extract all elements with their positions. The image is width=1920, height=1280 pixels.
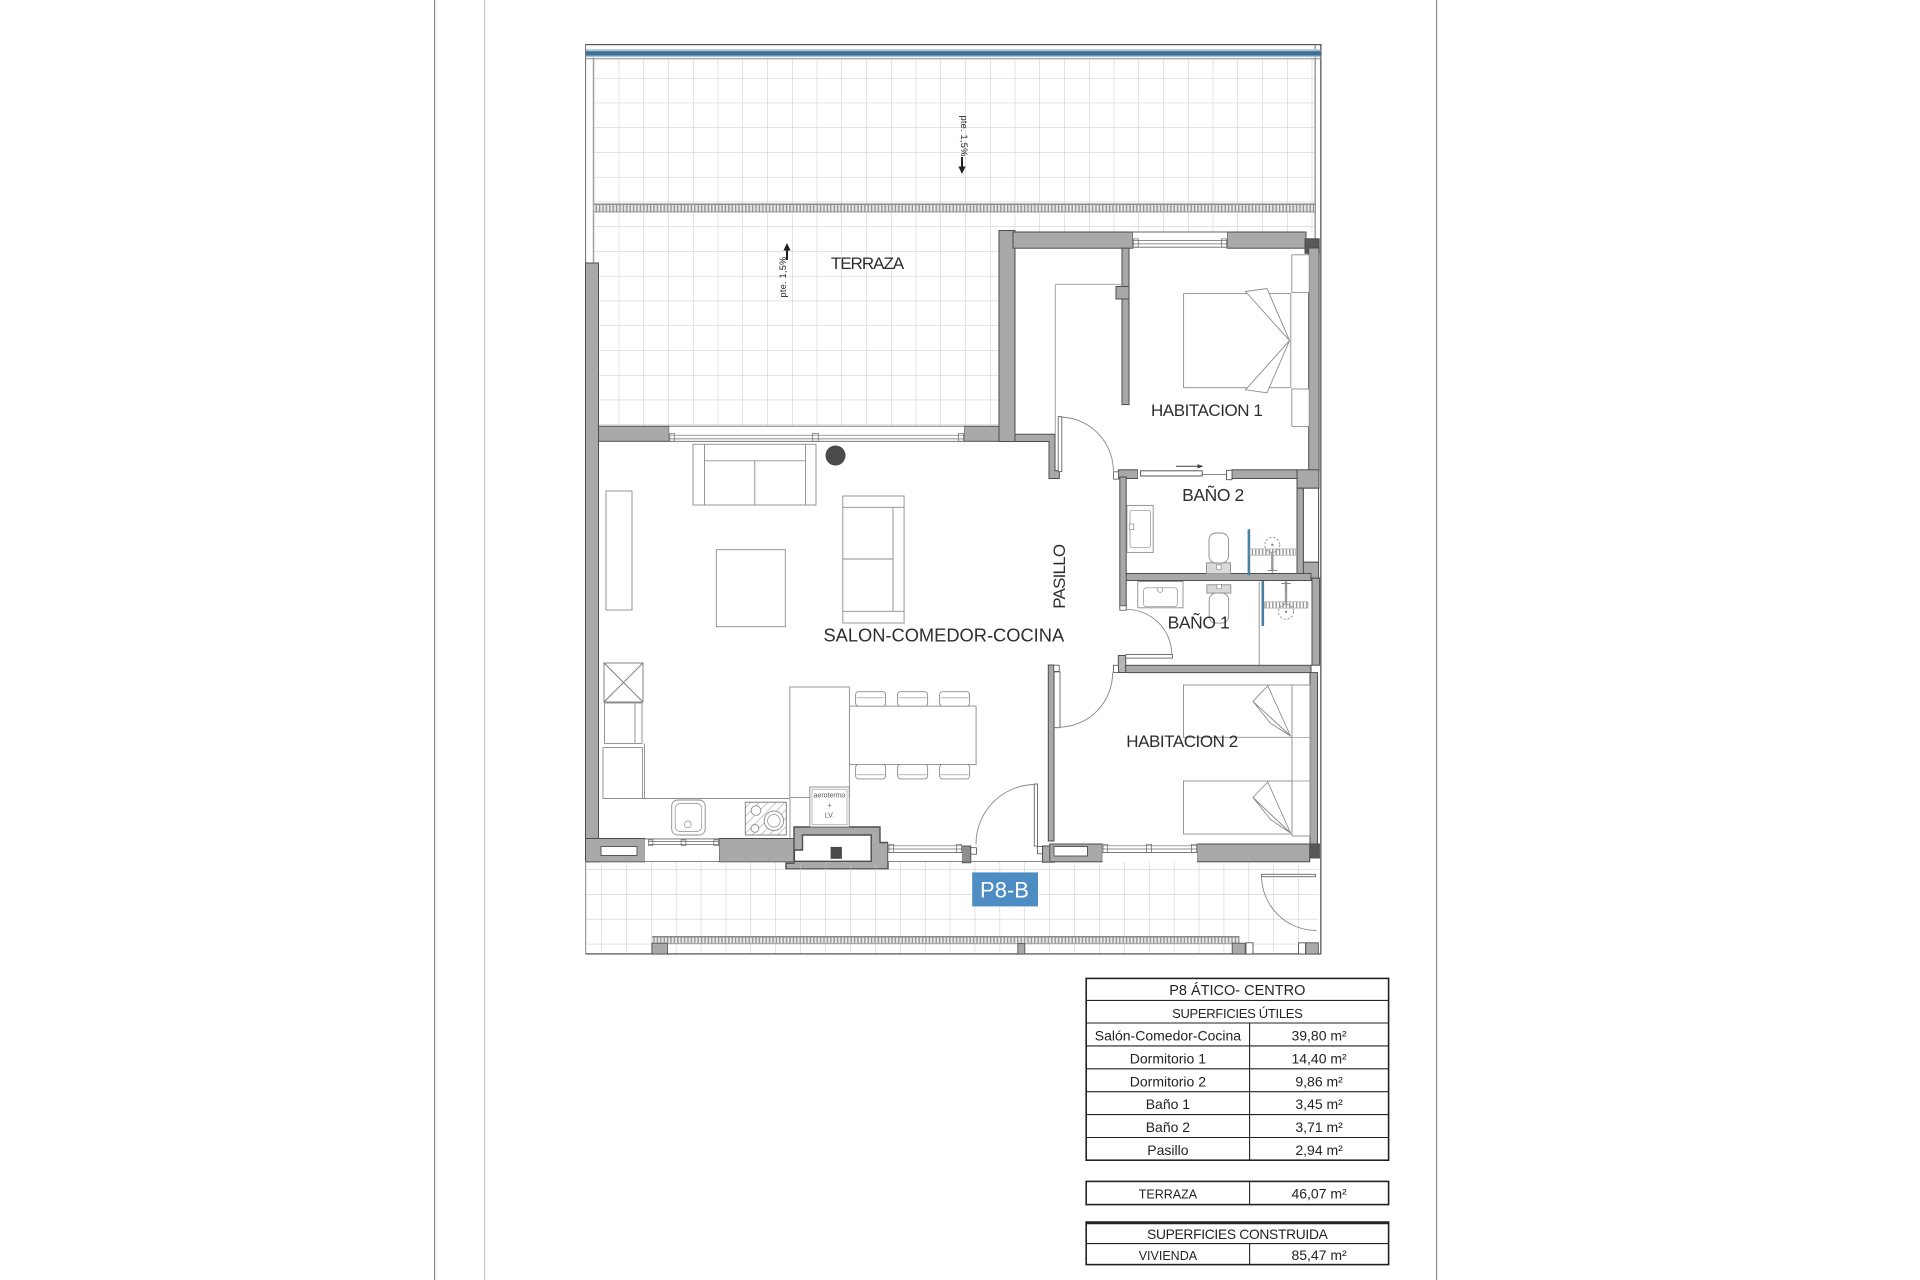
- svg-text:Dormitorio 2: Dormitorio 2: [1130, 1073, 1206, 1089]
- svg-text:SALON-COMEDOR-COCINA: SALON-COMEDOR-COCINA: [823, 625, 1065, 646]
- svg-text:pte. 1,5%: pte. 1,5%: [959, 115, 969, 156]
- svg-text:BAÑO 1: BAÑO 1: [1168, 612, 1230, 633]
- svg-text:85,47 m²: 85,47 m²: [1291, 1247, 1347, 1263]
- svg-text:9,86 m²: 9,86 m²: [1295, 1073, 1343, 1089]
- svg-text:Dormitorio 1: Dormitorio 1: [1130, 1050, 1206, 1066]
- svg-text:aerotermo: aerotermo: [814, 793, 846, 800]
- svg-text:Baño 2: Baño 2: [1146, 1119, 1191, 1135]
- svg-text:2,94 m²: 2,94 m²: [1295, 1142, 1343, 1158]
- svg-text:+: +: [827, 803, 831, 810]
- svg-text:SUPERFICIES CONSTRUIDA: SUPERFICIES CONSTRUIDA: [1147, 1227, 1329, 1242]
- svg-text:Salón-Comedor-Cocina: Salón-Comedor-Cocina: [1095, 1028, 1242, 1044]
- svg-text:PASILLO: PASILLO: [1050, 544, 1069, 609]
- svg-text:3,45 m²: 3,45 m²: [1295, 1096, 1343, 1112]
- svg-text:TERRAZA: TERRAZA: [1139, 1188, 1198, 1202]
- svg-text:46,07 m²: 46,07 m²: [1291, 1186, 1347, 1202]
- svg-text:HABITACION 2: HABITACION 2: [1126, 732, 1237, 751]
- svg-text:VIVIENDA: VIVIENDA: [1139, 1249, 1198, 1263]
- svg-text:TERRAZA: TERRAZA: [831, 254, 905, 273]
- svg-text:3,71 m²: 3,71 m²: [1295, 1119, 1343, 1135]
- svg-text:39,80 m²: 39,80 m²: [1291, 1028, 1347, 1044]
- svg-text:BAÑO 2: BAÑO 2: [1182, 484, 1244, 505]
- svg-text:P8 ÁTICO- CENTRO: P8 ÁTICO- CENTRO: [1169, 982, 1305, 999]
- svg-text:P8-B: P8-B: [980, 878, 1029, 903]
- svg-text:pte. 1,5%: pte. 1,5%: [778, 256, 788, 297]
- svg-text:14,40 m²: 14,40 m²: [1291, 1050, 1347, 1066]
- svg-text:Baño 1: Baño 1: [1146, 1096, 1191, 1112]
- svg-text:HABITACION 1: HABITACION 1: [1151, 401, 1262, 420]
- svg-text:SUPERFICIES ÚTILES: SUPERFICIES ÚTILES: [1172, 1006, 1303, 1021]
- svg-text:Pasillo: Pasillo: [1147, 1142, 1188, 1158]
- svg-text:LV.: LV.: [825, 813, 834, 820]
